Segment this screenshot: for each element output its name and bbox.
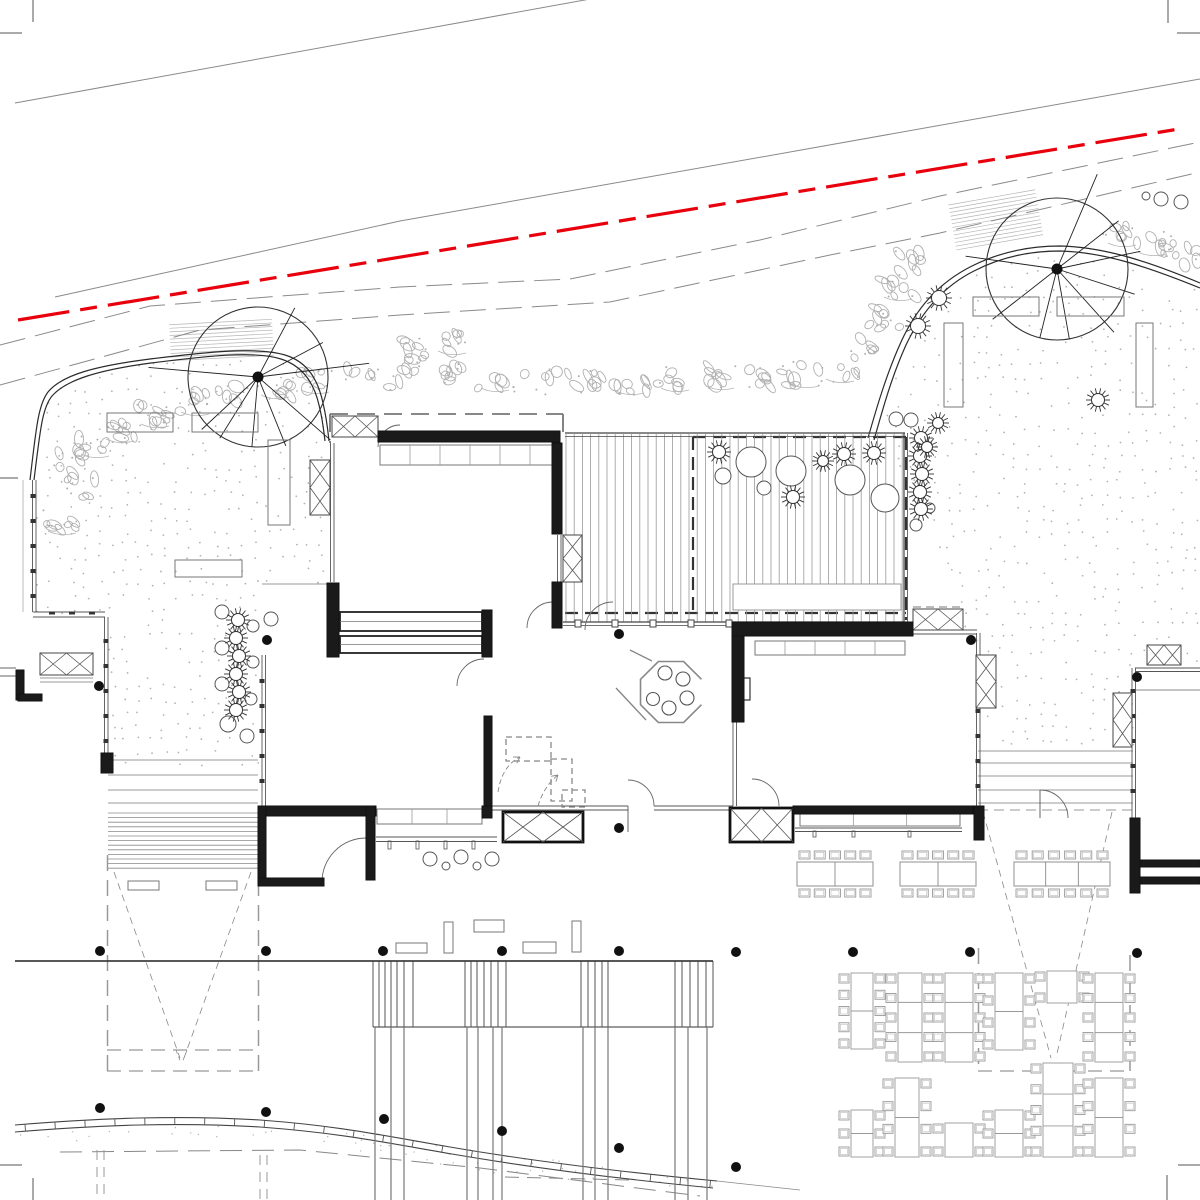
plants	[215, 192, 1188, 870]
property-line	[18, 128, 1185, 320]
roof-hatch-dashed	[498, 737, 585, 807]
octagon-planter	[616, 650, 701, 722]
site-plan-drawing	[0, 0, 1200, 1200]
ground-hatch	[169, 190, 1043, 361]
dining-tables	[797, 851, 1135, 1157]
walls	[16, 431, 1200, 893]
columns	[94, 629, 1142, 1172]
deck-boards	[563, 433, 908, 627]
pergola	[15, 961, 713, 1200]
site-plan	[0, 0, 1200, 1200]
bottom-road	[15, 1118, 800, 1190]
